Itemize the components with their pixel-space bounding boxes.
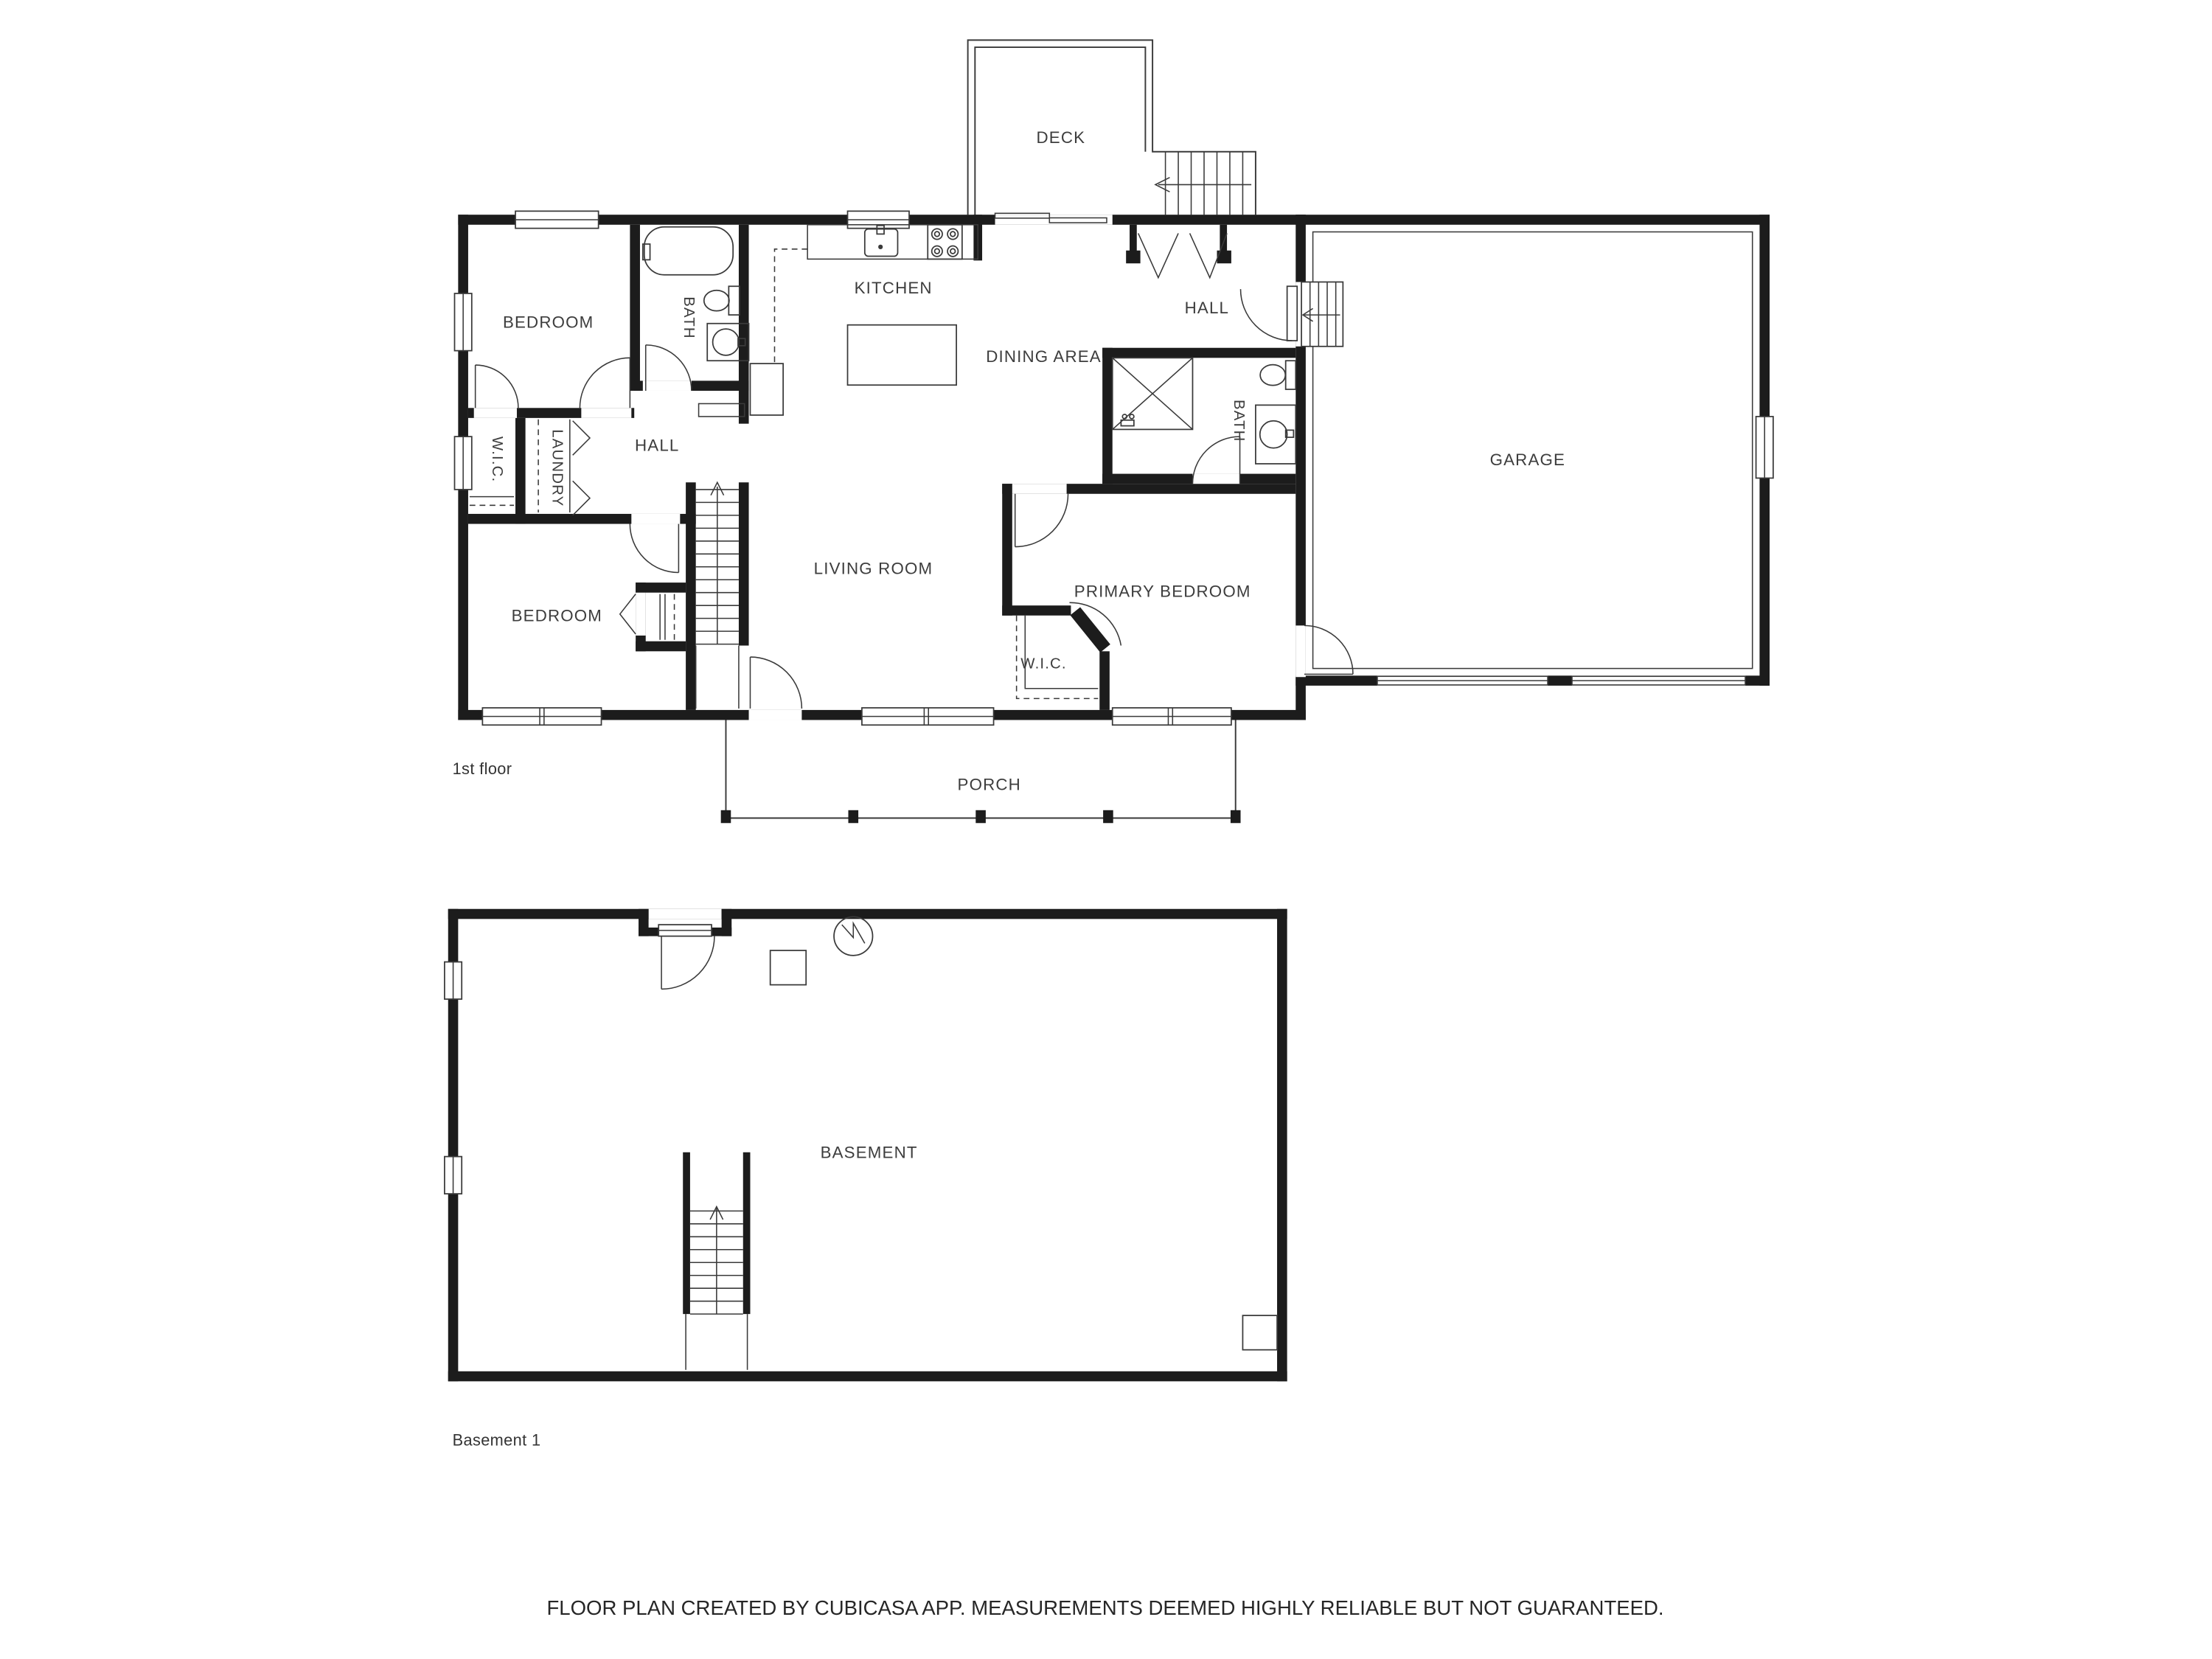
- room-label-garage: GARAGE: [1490, 451, 1565, 469]
- floor-plan-page: BEDROOM BATH KITCHEN HALL DINING AREA GA…: [0, 0, 2212, 1659]
- room-label-hall-inner: HALL: [635, 437, 679, 455]
- basement-entry-door: [658, 925, 714, 989]
- room-label-basement: BASEMENT: [821, 1144, 918, 1162]
- first-floor-plan: BEDROOM BATH KITCHEN HALL DINING AREA GA…: [453, 40, 1773, 823]
- room-label-bedroom-top: BEDROOM: [503, 313, 594, 332]
- staircase-basement: [683, 1152, 750, 1370]
- room-label-wic-left: W.I.C.: [489, 437, 505, 482]
- garage-entry-stairs: [1301, 282, 1343, 346]
- room-label-laundry: LAUNDRY: [549, 429, 566, 507]
- bathtub-icon: [643, 227, 733, 275]
- room-label-bedroom-lower: BEDROOM: [512, 607, 602, 625]
- appliance-box: [771, 950, 807, 985]
- room-label-deck: DECK: [1037, 128, 1086, 147]
- basement-plan: BASEMENT Basement 1: [445, 909, 1287, 1450]
- room-label-living: LIVING ROOM: [814, 559, 933, 577]
- kitchen-sink-icon: [865, 226, 898, 257]
- room-label-kitchen: KITCHEN: [855, 279, 933, 297]
- room-label-dining: DINING AREA: [986, 347, 1102, 366]
- porch-structure: [721, 720, 1241, 823]
- room-label-wic-primary: W.I.C.: [1020, 656, 1066, 672]
- room-label-hall-upper: HALL: [1185, 299, 1229, 317]
- room-label-bath-second: BATH: [1231, 400, 1247, 442]
- room-label-primary: PRIMARY BEDROOM: [1074, 582, 1251, 601]
- toilet-icon: [704, 286, 740, 315]
- floor-plan-canvas: BEDROOM BATH KITCHEN HALL DINING AREA GA…: [0, 0, 2212, 1659]
- room-label-bath-main: BATH: [681, 296, 697, 338]
- toilet-icon: [1260, 361, 1295, 389]
- staircase-main: [696, 403, 745, 709]
- utility-box: [1242, 1315, 1277, 1350]
- walls-first-floor: [458, 215, 1770, 720]
- stove-icon: [928, 225, 962, 260]
- disclaimer-text: FLOOR PLAN CREATED BY CUBICASA APP. MEAS…: [546, 1596, 1663, 1619]
- sink-icon: [1256, 405, 1295, 464]
- deck-structure: [968, 40, 1256, 215]
- water-heater-icon: [834, 917, 872, 955]
- kitchen-counter: [750, 225, 978, 415]
- fridge-icon: [750, 364, 783, 415]
- shower-icon: [1113, 358, 1193, 429]
- first-floor-caption: 1st floor: [453, 759, 512, 778]
- room-label-porch: PORCH: [958, 776, 1021, 794]
- kitchen-island: [848, 325, 957, 386]
- basement-caption: Basement 1: [453, 1431, 541, 1450]
